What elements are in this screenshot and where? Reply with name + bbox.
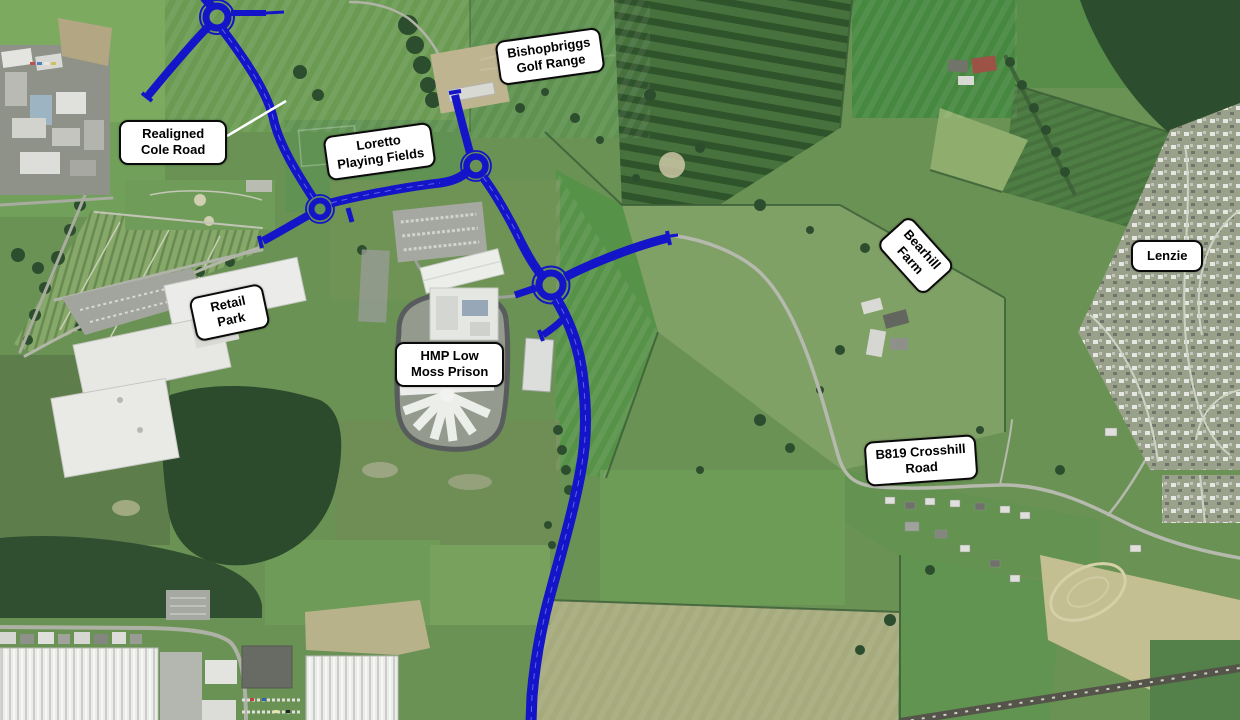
label-b819-crosshill-road: B819 Crosshill Road xyxy=(864,434,979,486)
label-hmp-low-moss-prison: HMP Low Moss Prison xyxy=(395,342,504,387)
label-lenzie: Lenzie xyxy=(1131,240,1203,272)
map-figure: Bishopbriggs Golf Range Realigned Cole R… xyxy=(0,0,1240,720)
label-realigned-cole-road: Realigned Cole Road xyxy=(119,120,227,165)
aerial-basemap xyxy=(0,0,1240,720)
